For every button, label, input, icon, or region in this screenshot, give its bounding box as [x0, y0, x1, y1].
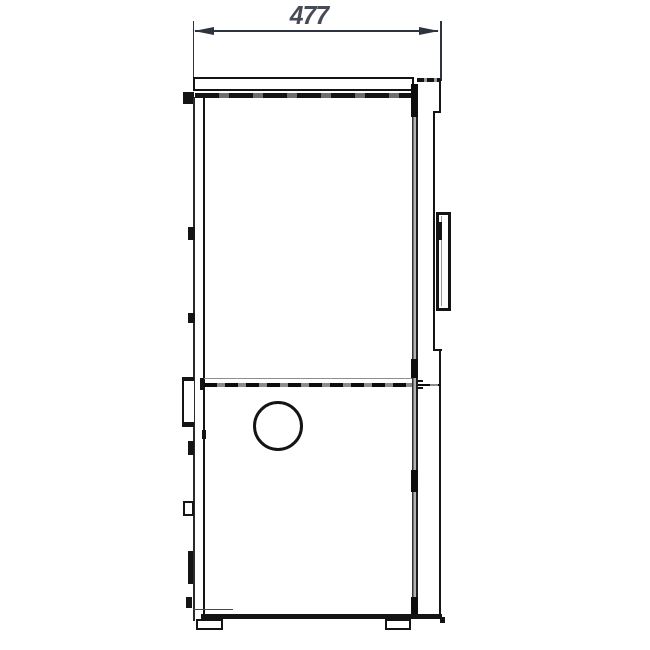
door-divider-top-line [204, 378, 412, 380]
divider-right-tick-lower [417, 387, 423, 390]
door-divider-seam [204, 383, 412, 388]
rear-shell-top-edge [417, 78, 440, 82]
left-lower-bar-tab [188, 551, 193, 584]
left-wall-mark-below-hinge [202, 430, 206, 439]
rear-handle-latch-mark [438, 222, 442, 240]
right-wall-weld-top [411, 84, 418, 117]
rear-shell-right-edge-upper [439, 79, 441, 113]
left-small-socket [183, 501, 194, 516]
round-port [253, 401, 303, 451]
dimension-arrow-right-icon [419, 27, 439, 35]
right-wall-weld-upper-mid [411, 359, 418, 378]
top-panel-edge-seam [195, 93, 416, 98]
width-dimension-label: 477 [285, 0, 333, 31]
top-panel [193, 77, 414, 91]
left-wall-outer-line [193, 97, 195, 621]
left-wall-mark-mid [188, 441, 194, 455]
rear-shell-right-edge-middle [433, 111, 435, 351]
right-wall-weld-lower-mid [411, 470, 418, 492]
base-step-line [193, 609, 233, 611]
foot-right [385, 619, 411, 630]
left-tab-middle [188, 313, 195, 323]
rear-shell-right-edge-lower [439, 349, 441, 615]
left-hinge-bracket [182, 377, 194, 427]
extension-line-left [193, 21, 195, 78]
technical-drawing-canvas: 477 [0, 0, 650, 650]
dimension-line [195, 30, 438, 32]
right-wall [412, 93, 418, 615]
left-wall-inner-line [203, 97, 206, 614]
base-right-corner-nub [440, 617, 445, 623]
extension-line-right [440, 21, 442, 81]
dimension-arrow-left-icon [194, 27, 214, 35]
left-tab-upper [188, 227, 195, 240]
foot-left [196, 619, 223, 630]
left-bottom-tab [186, 597, 192, 608]
divider-right-tick-upper [417, 380, 423, 383]
